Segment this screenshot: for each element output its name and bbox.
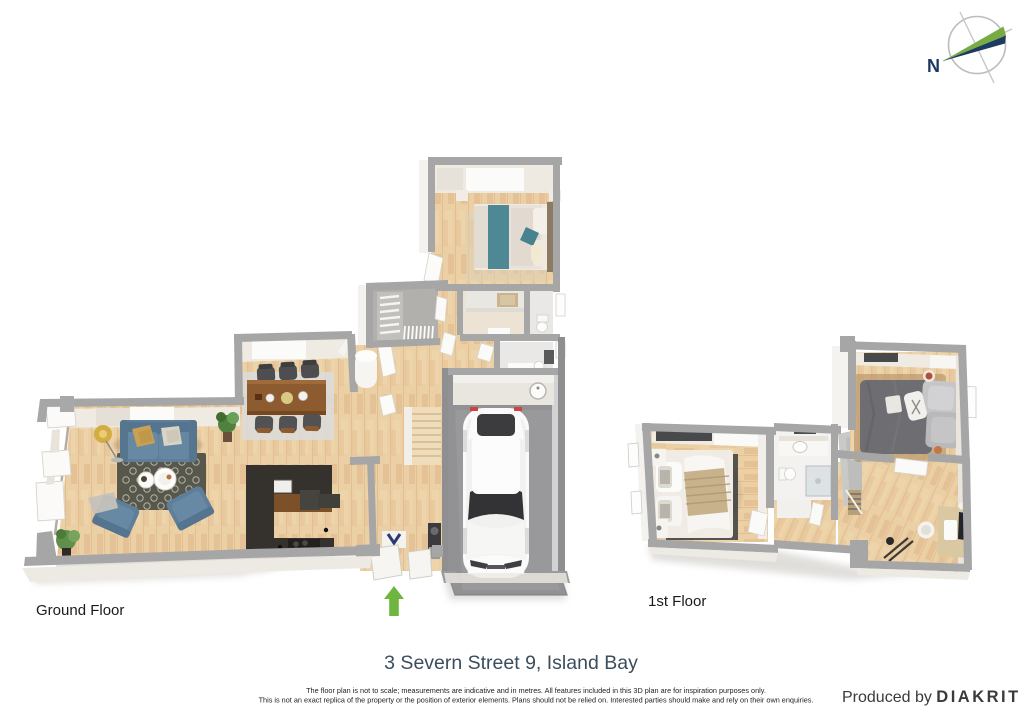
svg-text:N: N [927,56,940,76]
svg-text:Ground Floor: Ground Floor [36,602,124,619]
svg-text:This is not an exact replica o: This is not an exact replica of the prop… [259,696,814,705]
svg-text:1st Floor: 1st Floor [648,593,706,610]
svg-text:The floor plan is not to scale: The floor plan is not to scale; measurem… [306,686,766,695]
svg-text:3 Severn Street 9, Island Bay: 3 Severn Street 9, Island Bay [384,652,638,674]
svg-text:Produced by DIAKRIT: Produced by DIAKRIT [842,688,1021,706]
